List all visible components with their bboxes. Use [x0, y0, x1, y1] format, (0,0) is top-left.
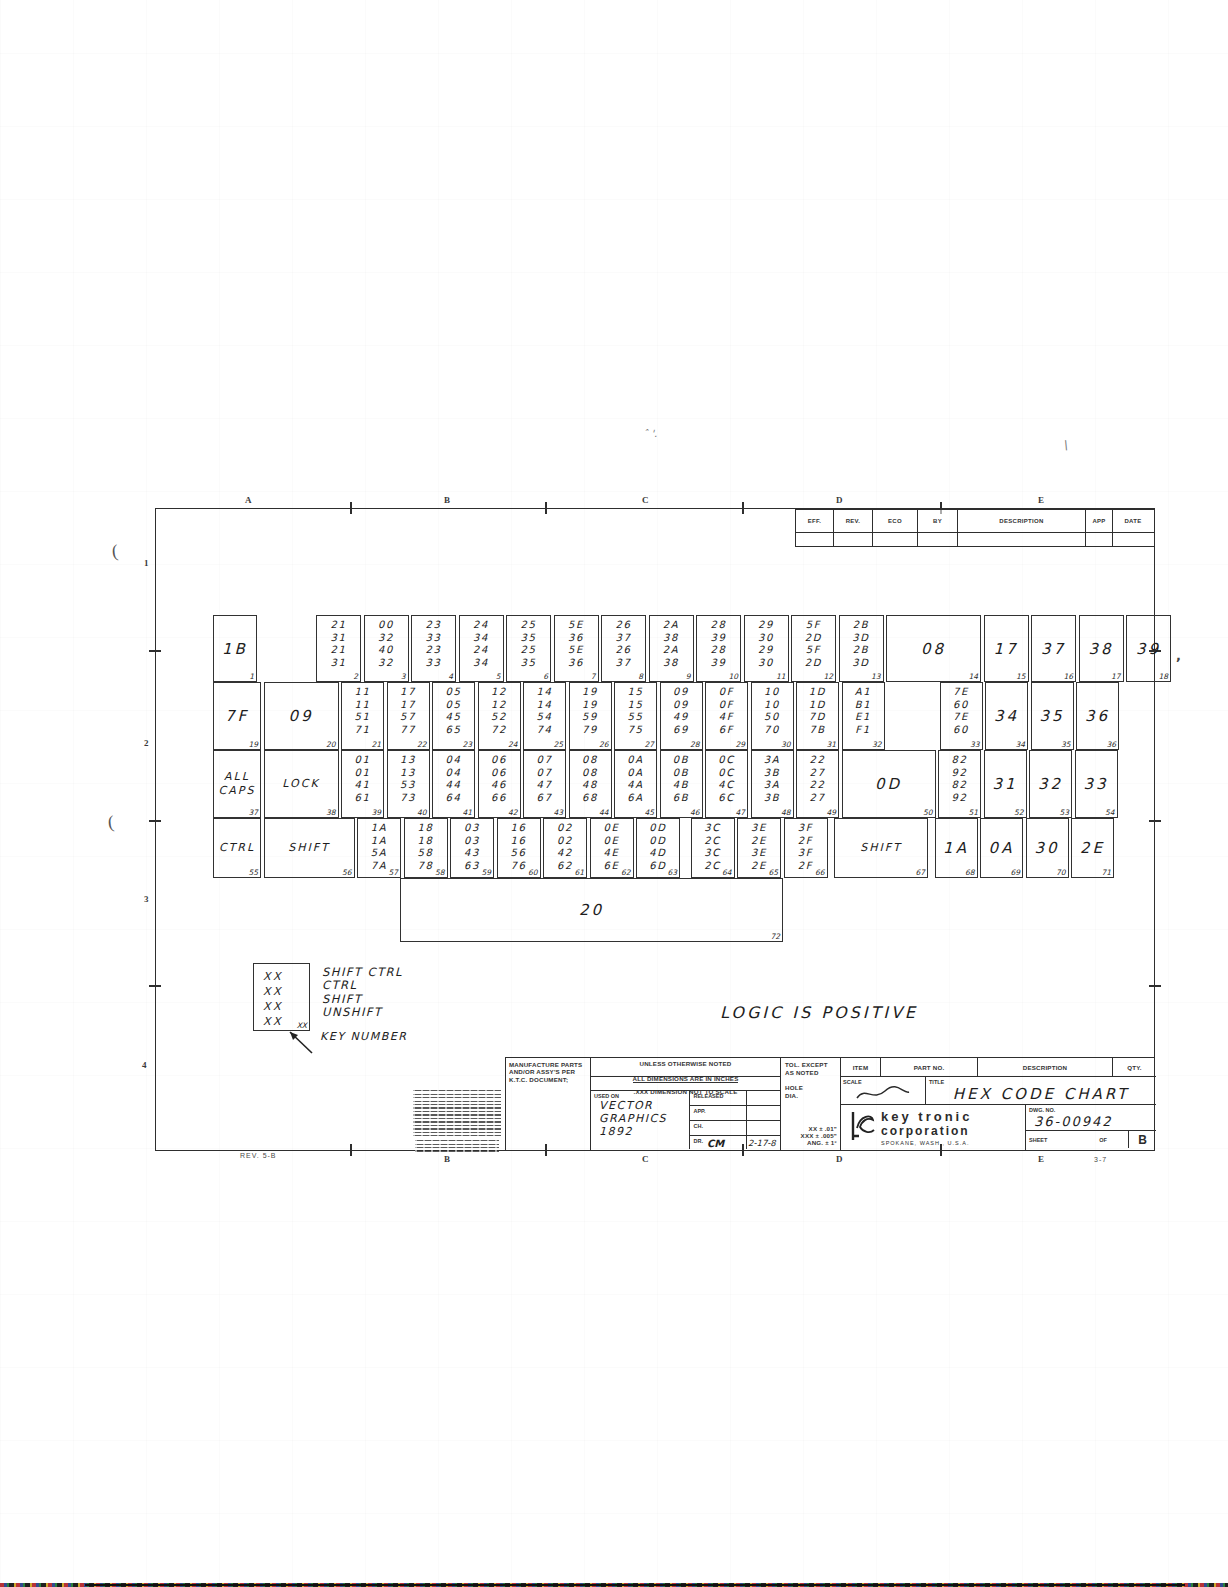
rev-col-date: DATE: [1113, 510, 1153, 532]
zone-tick: [350, 502, 352, 514]
logic-positive-note: LOGIC IS POSITIVE: [720, 1003, 918, 1022]
key-40: 1313537340: [387, 750, 430, 818]
key-31: 1D1D7D7B31: [796, 682, 839, 750]
zone-letter-bottom-c: C: [642, 1154, 650, 1164]
key-4: 233323334: [411, 615, 456, 682]
tolerance-label: TOL. EXCEPT AS NOTED: [781, 1058, 840, 1076]
key-54: 3354: [1075, 750, 1118, 818]
zone-tick: [149, 985, 161, 987]
key-13: 2B3D2B3D13: [839, 615, 884, 682]
dwg-no-label: DWG. NO.: [1029, 1107, 1055, 1113]
rev-col-app: APP: [1086, 510, 1113, 532]
tolerance-xxx: XXX ± .005": [801, 1132, 837, 1139]
scan-artifact-dot: ,: [1176, 648, 1181, 663]
description-label: DESCRIPTION: [978, 1058, 1113, 1076]
key-51: 8292829251: [938, 750, 981, 818]
company-cell: key tronic corporation SPOKANE, WASH., U…: [841, 1105, 1026, 1150]
key-62: 0E0E4E6E62: [590, 818, 634, 878]
scale-squiggle: [853, 1084, 913, 1104]
zone-number-3: 3: [144, 894, 150, 904]
zone-letter-bottom-e: E: [1038, 1154, 1045, 1164]
key-34: 3434: [985, 682, 1028, 750]
dwg-no-value: 36-00942: [1034, 1114, 1113, 1129]
key-56: SHIFT56: [264, 818, 355, 878]
legend-xx-shift: XX: [263, 999, 309, 1014]
zone-letter-bottom-d: D: [836, 1154, 844, 1164]
key-19: 7F19: [213, 682, 261, 750]
key-23: 0505456523: [432, 682, 475, 750]
tolerance-angle: ANG. ± 1°: [801, 1139, 837, 1146]
legend-label-shift: SHIFT: [322, 993, 403, 1006]
key-57: 1A1A5A7A57: [357, 818, 401, 878]
key-35: 3535: [1031, 682, 1074, 750]
key-58: 1818587858: [404, 818, 448, 878]
key-10: 2839283910: [696, 615, 741, 682]
legend-xx-shift-ctrl: XX: [263, 969, 309, 984]
key-42: 0606466642: [478, 750, 521, 818]
used-on-label: USED ON: [591, 1091, 689, 1099]
key-17: 3817: [1079, 615, 1124, 682]
zone-letter-top-e: E: [1038, 495, 1045, 505]
key-5: 243424345: [459, 615, 504, 682]
legend-label-shift-ctrl: SHIFT CTRL: [322, 966, 403, 979]
title-section: ITEM PART NO. DESCRIPTION QTY. SCALE TIT…: [841, 1058, 1156, 1150]
manufacture-note: MANUFACTURE PARTS AND/OR ASSY'S PER K.T.…: [506, 1058, 590, 1083]
key-60: 1616567660: [497, 818, 541, 878]
hole-dia-label: HOLE DIA.: [781, 1076, 840, 1099]
legend-labels: SHIFT CTRL CTRL SHIFT UNSHIFT: [322, 966, 403, 1020]
key-number-label: KEY NUMBER: [320, 1030, 407, 1043]
key-65: 3E2E3E2E65: [737, 818, 781, 878]
dr-label: DR.: [693, 1138, 702, 1149]
key-26: 1919597926: [569, 682, 612, 750]
title-label: TITLE: [929, 1079, 944, 1085]
key-66: 3F2F3F2F66: [784, 818, 828, 878]
key-33: 7E607E6033: [940, 682, 983, 750]
key-39: 0101416139: [341, 750, 384, 818]
key-27: 1515557527: [614, 682, 657, 750]
key-29: 0F0F4F6F29: [705, 682, 748, 750]
key-43: 0707476743: [523, 750, 566, 818]
key-22: 1717577722: [387, 682, 430, 750]
legend-label-unshift: UNSHIFT: [322, 1006, 403, 1019]
dimensions-section: UNLESS OTHERWISE NOTED ALL DIMENSIONS AR…: [591, 1058, 781, 1150]
legend-xx-ctrl: XX: [263, 984, 309, 999]
sheet-page-note: 3-7: [1094, 1156, 1107, 1163]
legend-key-box: XX XX XX XX XX: [253, 963, 310, 1031]
zone-letter-bottom-b: B: [444, 1154, 451, 1164]
scan-artifact-paren-2: (: [107, 812, 115, 834]
key-72: 2072: [400, 878, 783, 942]
key-50: 0D50: [842, 750, 936, 818]
zone-tick: [545, 502, 547, 514]
scan-edge-line: [85, 1584, 1185, 1586]
company-name-1: key tronic: [881, 1109, 972, 1124]
part-no-label: PART NO.: [881, 1058, 978, 1076]
key-20: 0920: [264, 682, 339, 750]
rev-col-rev: REV.: [834, 510, 873, 532]
rev-col-by: BY: [918, 510, 958, 532]
qty-label: QTY.: [1113, 1058, 1156, 1076]
zone-number-1: 1: [144, 558, 150, 568]
key-15: 1715: [984, 615, 1029, 682]
zone-tick: [149, 650, 161, 652]
zone-tick: [1149, 985, 1161, 987]
zone-tick: [742, 502, 744, 514]
zone-letter-top-d: D: [836, 495, 844, 505]
revision-letter: B: [1138, 1133, 1147, 1147]
scan-artifact-caret: ˆ '.: [643, 428, 657, 439]
key-32: A1B1E1F132: [842, 682, 885, 750]
key-6: 253525356: [506, 615, 551, 682]
key-52: 3152: [984, 750, 1027, 818]
zone-tick: [149, 820, 161, 822]
key-36: 3636: [1076, 682, 1119, 750]
tolerance-xx: XX ± .01": [801, 1125, 837, 1132]
key-48: 3A3B3A3B48: [751, 750, 794, 818]
scan-artifact-paren-1: (: [111, 541, 119, 563]
manufacture-note-section: MANUFACTURE PARTS AND/OR ASSY'S PER K.T.…: [506, 1058, 591, 1150]
title-block: MANUFACTURE PARTS AND/OR ASSY'S PER K.T.…: [505, 1057, 1155, 1151]
key-25: 1414547425: [523, 682, 566, 750]
zone-letter-top-a: A: [245, 495, 253, 505]
key-24: 1212527224: [478, 682, 521, 750]
key-11: 2930293011: [744, 615, 789, 682]
dims-note-line1: UNLESS OTHERWISE NOTED: [591, 1060, 780, 1067]
key-63: 0D0D4D6D63: [636, 818, 680, 878]
key-14: 0814: [886, 615, 981, 682]
zone-letter-top-c: C: [642, 495, 650, 505]
company-name-2: corporation: [881, 1124, 972, 1138]
rev-col-description: DESCRIPTION: [958, 510, 1086, 532]
key-71: 2E71: [1071, 818, 1114, 878]
scan-artifact-backslash: \: [1063, 438, 1070, 453]
app-label: APP.: [690, 1106, 746, 1120]
key-67: SHIFT67: [834, 818, 928, 878]
rev-col-eco: ECO: [873, 510, 918, 532]
key-55: CTRL55: [213, 818, 261, 878]
item-label: ITEM: [841, 1058, 881, 1076]
key-69: 0A69: [980, 818, 1023, 878]
key-9: 2A382A389: [649, 615, 694, 682]
key-44: 0808486844: [569, 750, 612, 818]
key-70: 3070: [1026, 818, 1069, 878]
zone-number-2: 2: [144, 738, 150, 748]
fine-print-notice-2: [415, 1140, 499, 1154]
dr-signature: CM: [707, 1138, 724, 1149]
key-12: 5F2D5F2D12: [791, 615, 836, 682]
company-location: SPOKANE, WASH., U.S.A.: [881, 1138, 972, 1146]
key-49: 2227222749: [796, 750, 839, 818]
key-59: 0303436359: [450, 818, 494, 878]
key-18: 3918: [1126, 615, 1171, 682]
key-38: LOCK38: [264, 750, 339, 818]
used-on-value: VECTOR GRAPHICS 1892: [591, 1099, 689, 1138]
key-37: ALL CAPS37: [213, 750, 261, 818]
dr-date: 2-17-8: [748, 1138, 776, 1148]
released-label: RELEASED: [690, 1091, 746, 1105]
key-7: 5E365E367: [554, 615, 599, 682]
zone-letter-top-b: B: [444, 495, 451, 505]
key-45: 0A0A4A6A45: [614, 750, 657, 818]
key-30: 1010507030: [751, 682, 794, 750]
key-1: 1B1: [213, 615, 257, 682]
tolerance-section: TOL. EXCEPT AS NOTED HOLE DIA. XX ± .01"…: [781, 1058, 841, 1150]
key-47: 0C0C4C6C47: [705, 750, 748, 818]
revision-empty-row: [796, 532, 1154, 546]
sheet-of-label: OF: [1047, 1137, 1107, 1143]
key-64: 3C2C3C2C64: [691, 818, 735, 878]
key-21: 1111517121: [341, 682, 384, 750]
key-2: 213121312: [316, 615, 361, 682]
scanned-drawing-page: A B C D E B C D E 1 2 3 4 EFF. REV. ECO …: [0, 0, 1228, 1587]
legend-label-ctrl: CTRL: [322, 979, 403, 992]
sheet-label: SHEET: [1026, 1137, 1047, 1143]
ch-label: CH.: [690, 1121, 746, 1135]
key-28: 0909496928: [660, 682, 703, 750]
key-46: 0B0B4B6B46: [660, 750, 703, 818]
key-tronic-logo-icon: [847, 1108, 877, 1146]
drawing-title: HEX CODE CHART: [926, 1077, 1156, 1103]
rev-col-eff: EFF.: [796, 510, 834, 532]
key-8: 263726378: [601, 615, 646, 682]
zone-tick: [350, 1144, 352, 1156]
key-61: 0202426261: [543, 818, 587, 878]
zone-tick: [1149, 820, 1161, 822]
zone-number-4: 4: [142, 1060, 148, 1070]
key-3: 003240323: [364, 615, 409, 682]
key-16: 3716: [1031, 615, 1076, 682]
key-41: 0404446441: [432, 750, 475, 818]
key-53: 3253: [1029, 750, 1072, 818]
fine-print-notice: [413, 1090, 501, 1136]
key-68: 1A68: [935, 818, 978, 878]
sheet-rev-note: REV. 5-B: [240, 1152, 277, 1159]
revision-table: EFF. REV. ECO BY DESCRIPTION APP DATE: [795, 509, 1155, 547]
